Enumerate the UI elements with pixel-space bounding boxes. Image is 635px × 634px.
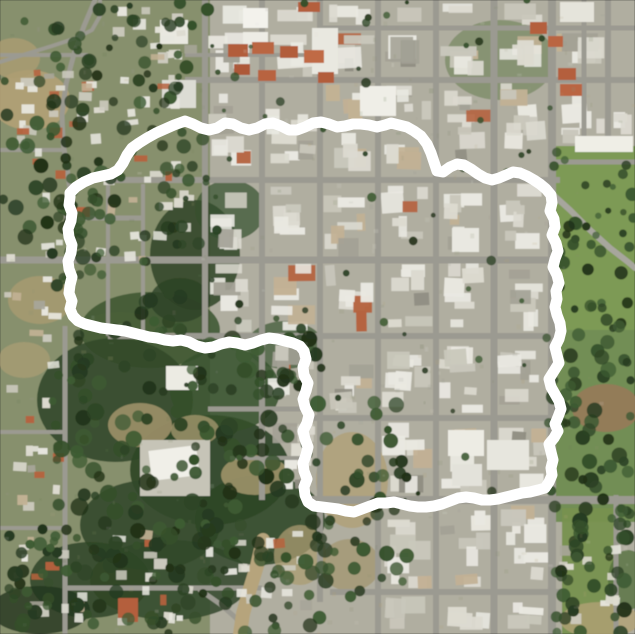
satellite-map-canvas[interactable] [0,0,635,634]
satellite-map[interactable] [0,0,635,634]
